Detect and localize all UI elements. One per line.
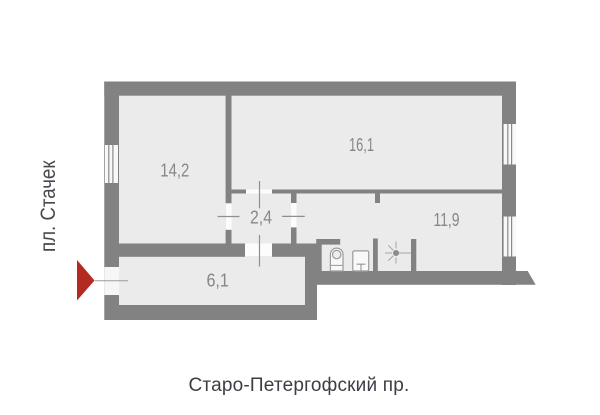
svg-text:14,2: 14,2 <box>160 160 189 180</box>
svg-text:16,1: 16,1 <box>349 135 374 155</box>
svg-text:пл. Стачек: пл. Стачек <box>37 160 60 252</box>
svg-text:6,1: 6,1 <box>206 270 229 290</box>
svg-text:11,9: 11,9 <box>434 210 460 230</box>
svg-text:Старо-Петергофский пр.: Старо-Петергофский пр. <box>188 375 409 396</box>
svg-text:2,4: 2,4 <box>250 207 272 227</box>
